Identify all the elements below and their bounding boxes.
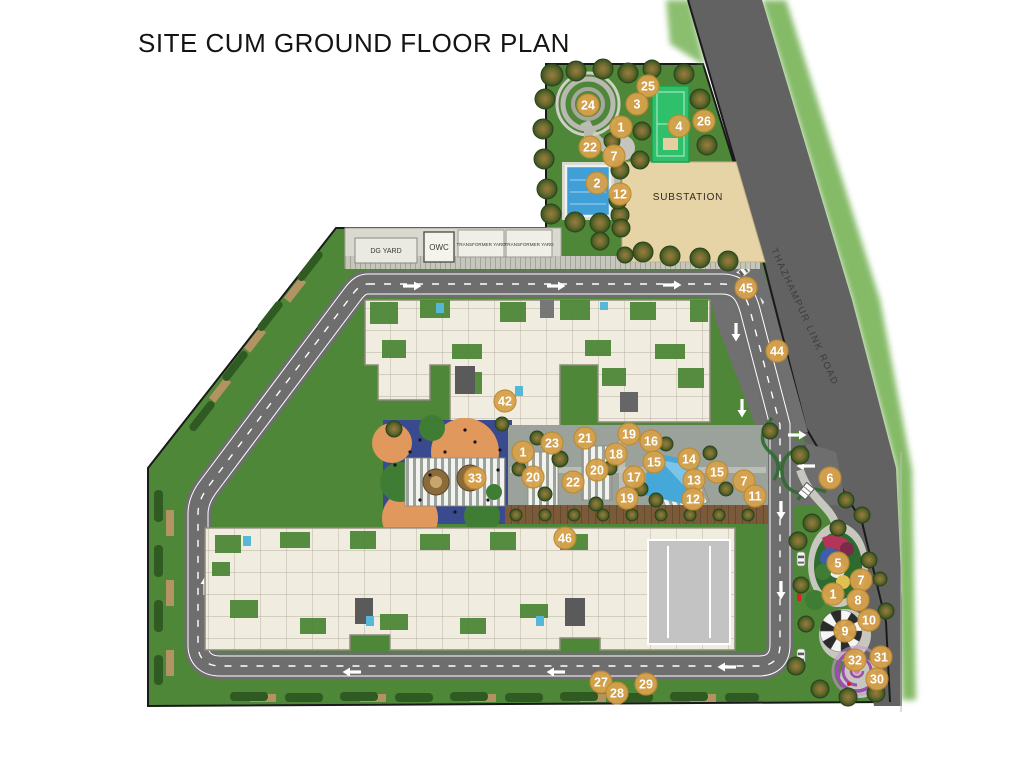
- dg-yard-label: DG YARD: [370, 248, 401, 255]
- svg-text:12: 12: [613, 188, 627, 202]
- plan-marker-16: 16: [640, 430, 662, 452]
- swimming-pool: [562, 162, 614, 220]
- plan-marker-17: 17: [623, 466, 645, 488]
- owc-label: OWC: [429, 243, 449, 252]
- plan-marker-5: 5: [827, 552, 849, 574]
- tree-icon: [742, 509, 754, 521]
- tree-icon: [718, 251, 738, 271]
- tree-icon: [568, 509, 580, 521]
- svg-text:19: 19: [620, 492, 634, 506]
- tree-icon: [811, 680, 829, 698]
- svg-text:24: 24: [581, 99, 595, 113]
- plan-marker-29: 29: [635, 673, 657, 695]
- svg-text:20: 20: [590, 464, 604, 478]
- plan-marker-31: 31: [870, 646, 892, 668]
- svg-text:22: 22: [583, 141, 597, 155]
- svg-text:20: 20: [526, 471, 540, 485]
- tree-icon: [649, 493, 663, 507]
- transformer-yard-label: TRANSFORMER YARD: [456, 242, 506, 247]
- tree-icon: [591, 232, 609, 250]
- plan-marker-22: 22: [579, 136, 601, 158]
- plan-marker-1: 1: [512, 441, 534, 463]
- tree-icon: [690, 89, 710, 109]
- svg-text:10: 10: [862, 614, 876, 628]
- tree-icon: [861, 552, 877, 568]
- svg-text:44: 44: [770, 345, 784, 359]
- tree-icon: [537, 179, 557, 199]
- plan-marker-7: 7: [603, 145, 625, 167]
- tree-icon: [703, 446, 717, 460]
- plan-marker-20: 20: [522, 466, 544, 488]
- parked-car-icon: [797, 552, 805, 566]
- tree-icon: [510, 509, 522, 521]
- plan-marker-3: 3: [626, 93, 648, 115]
- tree-icon: [541, 64, 563, 86]
- svg-text:7: 7: [611, 150, 618, 164]
- plan-marker-14: 14: [678, 448, 700, 470]
- plan-marker-2: 2: [586, 172, 608, 194]
- svg-text:19: 19: [622, 428, 636, 442]
- svg-text:5: 5: [835, 557, 842, 571]
- svg-text:26: 26: [697, 115, 711, 129]
- svg-text:31: 31: [874, 651, 888, 665]
- tree-icon: [655, 509, 667, 521]
- tree-icon: [793, 577, 809, 593]
- tree-icon: [838, 492, 854, 508]
- tree-icon: [617, 247, 633, 263]
- svg-text:7: 7: [858, 574, 865, 588]
- plan-marker-22: 22: [562, 471, 584, 493]
- plan-marker-10: 10: [858, 609, 880, 631]
- plan-marker-7: 7: [850, 569, 872, 591]
- svg-text:1: 1: [618, 121, 625, 135]
- person-figure: [797, 593, 801, 601]
- plan-marker-33: 33: [464, 467, 486, 489]
- svg-text:1: 1: [830, 588, 837, 602]
- plan-marker-42: 42: [494, 390, 516, 412]
- site-plan-page: SITE CUM GROUND FLOOR PLAN: [0, 0, 1024, 768]
- plan-marker-30: 30: [866, 668, 888, 690]
- svg-text:16: 16: [644, 435, 658, 449]
- plan-marker-44: 44: [766, 340, 788, 362]
- plan-marker-4: 4: [668, 115, 690, 137]
- svg-text:6: 6: [827, 472, 834, 486]
- plan-marker-19: 19: [618, 423, 640, 445]
- svg-text:21: 21: [578, 432, 592, 446]
- svg-text:8: 8: [855, 594, 862, 608]
- plan-marker-1: 1: [610, 116, 632, 138]
- svg-text:17: 17: [627, 471, 641, 485]
- tree-icon: [791, 446, 809, 464]
- tree-icon: [873, 572, 887, 586]
- plan-marker-20: 20: [586, 459, 608, 481]
- tree-icon: [789, 532, 807, 550]
- svg-text:14: 14: [682, 453, 696, 467]
- plan-marker-11: 11: [744, 485, 766, 507]
- tree-icon: [535, 89, 555, 109]
- svg-text:13: 13: [687, 474, 701, 488]
- svg-text:28: 28: [610, 687, 624, 701]
- plan-marker-21: 21: [574, 427, 596, 449]
- plan-marker-9: 9: [834, 620, 856, 642]
- tree-icon: [697, 135, 717, 155]
- tree-icon: [386, 421, 402, 437]
- svg-text:32: 32: [848, 654, 862, 668]
- svg-text:23: 23: [545, 437, 559, 451]
- tree-icon: [839, 688, 857, 706]
- plan-marker-19: 19: [616, 487, 638, 509]
- svg-text:46: 46: [558, 532, 572, 546]
- svg-text:33: 33: [468, 472, 482, 486]
- plan-marker-45: 45: [735, 277, 757, 299]
- plan-marker-15: 15: [643, 451, 665, 473]
- building-block-south: [205, 528, 735, 650]
- tree-icon: [538, 487, 552, 501]
- plan-marker-8: 8: [847, 589, 869, 611]
- tree-icon: [565, 212, 585, 232]
- tree-icon: [631, 151, 649, 169]
- tree-icon: [612, 219, 630, 237]
- svg-text:25: 25: [641, 80, 655, 94]
- tree-icon: [719, 482, 733, 496]
- tree-icon: [633, 242, 653, 262]
- svg-text:7: 7: [741, 475, 748, 489]
- plan-marker-6: 6: [819, 467, 841, 489]
- plan-marker-28: 28: [606, 682, 628, 704]
- plan-marker-46: 46: [554, 527, 576, 549]
- tree-icon: [534, 149, 554, 169]
- tree-icon: [803, 514, 821, 532]
- tree-icon: [533, 119, 553, 139]
- svg-text:42: 42: [498, 395, 512, 409]
- site-plan-drawing: THAZHAMPUR LINK ROAD DG: [0, 0, 1024, 768]
- svg-text:29: 29: [639, 678, 653, 692]
- plan-marker-32: 32: [844, 649, 866, 671]
- svg-text:9: 9: [842, 625, 849, 639]
- tree-icon: [660, 246, 680, 266]
- svg-text:4: 4: [676, 120, 683, 134]
- plan-marker-12: 12: [609, 183, 631, 205]
- tree-icon: [690, 248, 710, 268]
- plan-marker-15: 15: [706, 461, 728, 483]
- svg-text:3: 3: [634, 98, 641, 112]
- tree-icon: [878, 603, 894, 619]
- tree-icon: [618, 63, 638, 83]
- plan-marker-24: 24: [577, 94, 599, 116]
- svg-text:22: 22: [566, 476, 580, 490]
- tree-icon: [590, 213, 610, 233]
- tree-icon: [684, 509, 696, 521]
- svg-text:30: 30: [870, 673, 884, 687]
- tree-icon: [674, 64, 694, 84]
- tree-icon: [633, 122, 651, 140]
- svg-text:15: 15: [710, 466, 724, 480]
- transformer-yard-label: TRANSFORMER YARD: [504, 242, 554, 247]
- tree-icon: [541, 204, 561, 224]
- plan-marker-1: 1: [822, 583, 844, 605]
- tree-icon: [539, 509, 551, 521]
- basement-ramp: [648, 540, 730, 644]
- svg-text:11: 11: [748, 490, 761, 504]
- tree-icon: [762, 423, 778, 439]
- tree-icon: [495, 417, 509, 431]
- svg-text:2: 2: [594, 177, 601, 191]
- svg-text:27: 27: [594, 676, 608, 690]
- tree-icon: [854, 507, 870, 523]
- plan-marker-18: 18: [605, 443, 627, 465]
- svg-text:18: 18: [609, 448, 623, 462]
- plan-marker-23: 23: [541, 432, 563, 454]
- tree-icon: [626, 509, 638, 521]
- svg-text:15: 15: [647, 456, 661, 470]
- svg-text:1: 1: [520, 446, 527, 460]
- svg-text:12: 12: [686, 493, 700, 507]
- tree-icon: [713, 509, 725, 521]
- tree-icon: [787, 657, 805, 675]
- tree-icon: [593, 59, 613, 79]
- svg-text:45: 45: [739, 282, 753, 296]
- plan-marker-26: 26: [693, 110, 715, 132]
- plan-marker-12: 12: [682, 488, 704, 510]
- tree-icon: [566, 61, 586, 81]
- substation-label: SUBSTATION: [653, 192, 723, 203]
- tree-icon: [798, 616, 814, 632]
- tree-icon: [597, 509, 609, 521]
- tree-icon: [830, 520, 846, 536]
